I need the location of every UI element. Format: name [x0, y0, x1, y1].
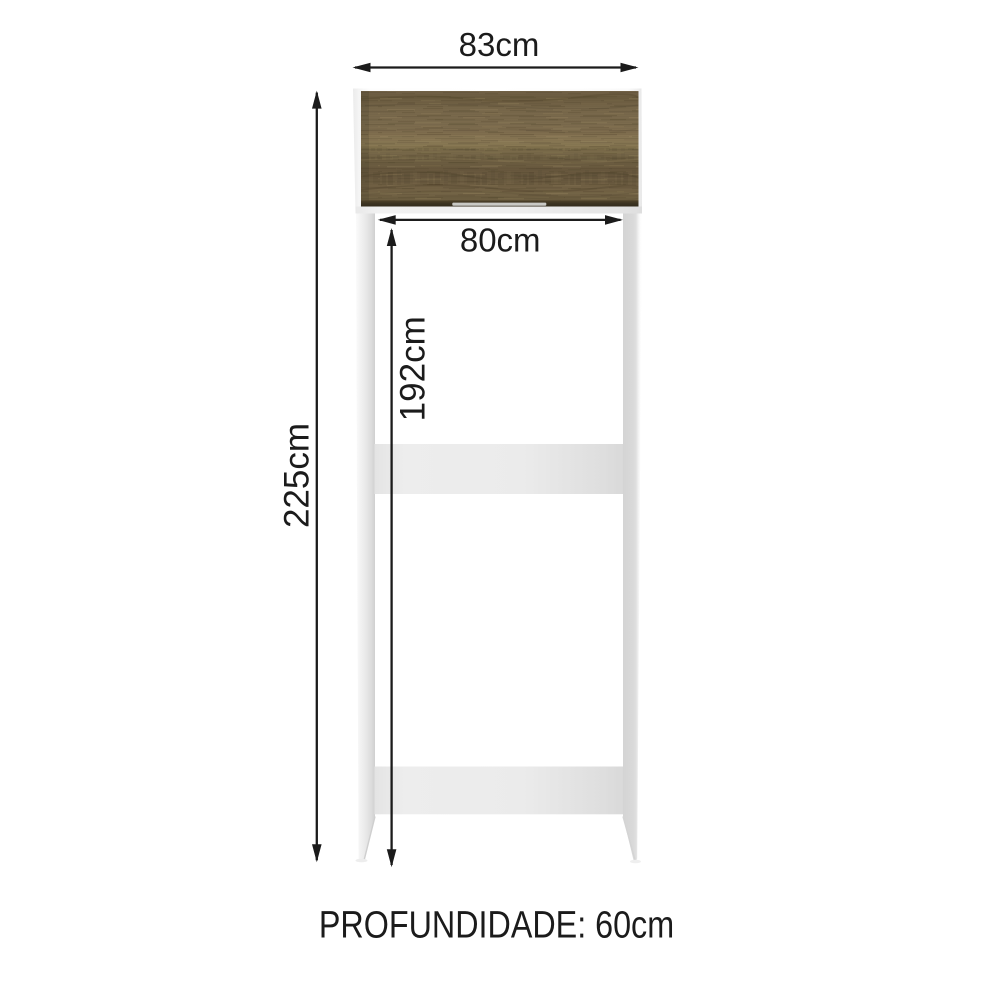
- svg-text:PROFUNDIDADE: 60cm: PROFUNDIDADE: 60cm: [319, 904, 674, 946]
- svg-text:80cm: 80cm: [460, 222, 541, 259]
- svg-text:225cm: 225cm: [277, 423, 316, 528]
- svg-text:192cm: 192cm: [394, 316, 433, 421]
- svg-text:83cm: 83cm: [459, 26, 540, 63]
